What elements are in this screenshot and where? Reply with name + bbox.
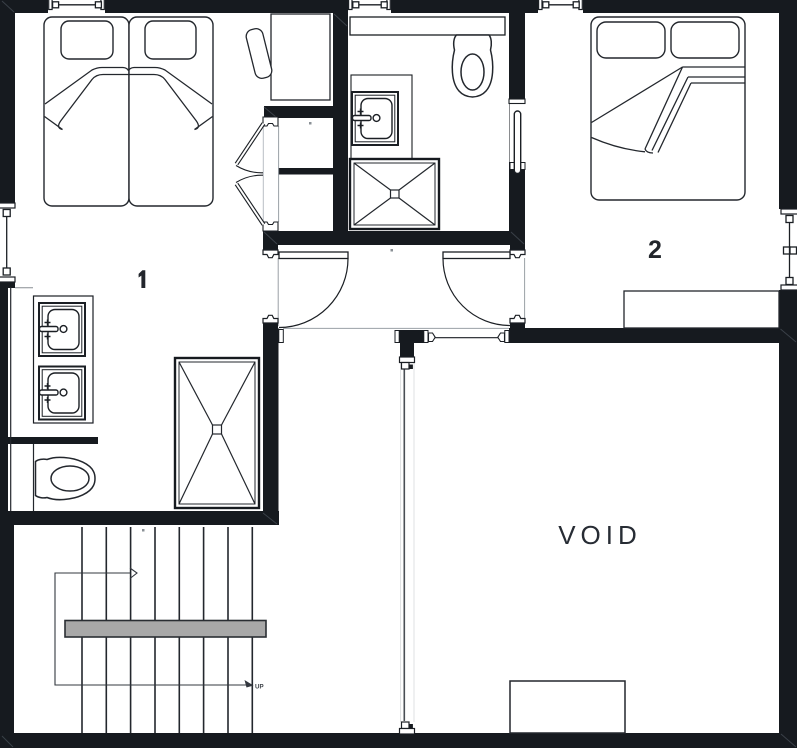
svg-text:VOID: VOID [558,520,642,550]
svg-text:2: 2 [648,236,662,264]
svg-text:UP: UP [255,684,264,691]
